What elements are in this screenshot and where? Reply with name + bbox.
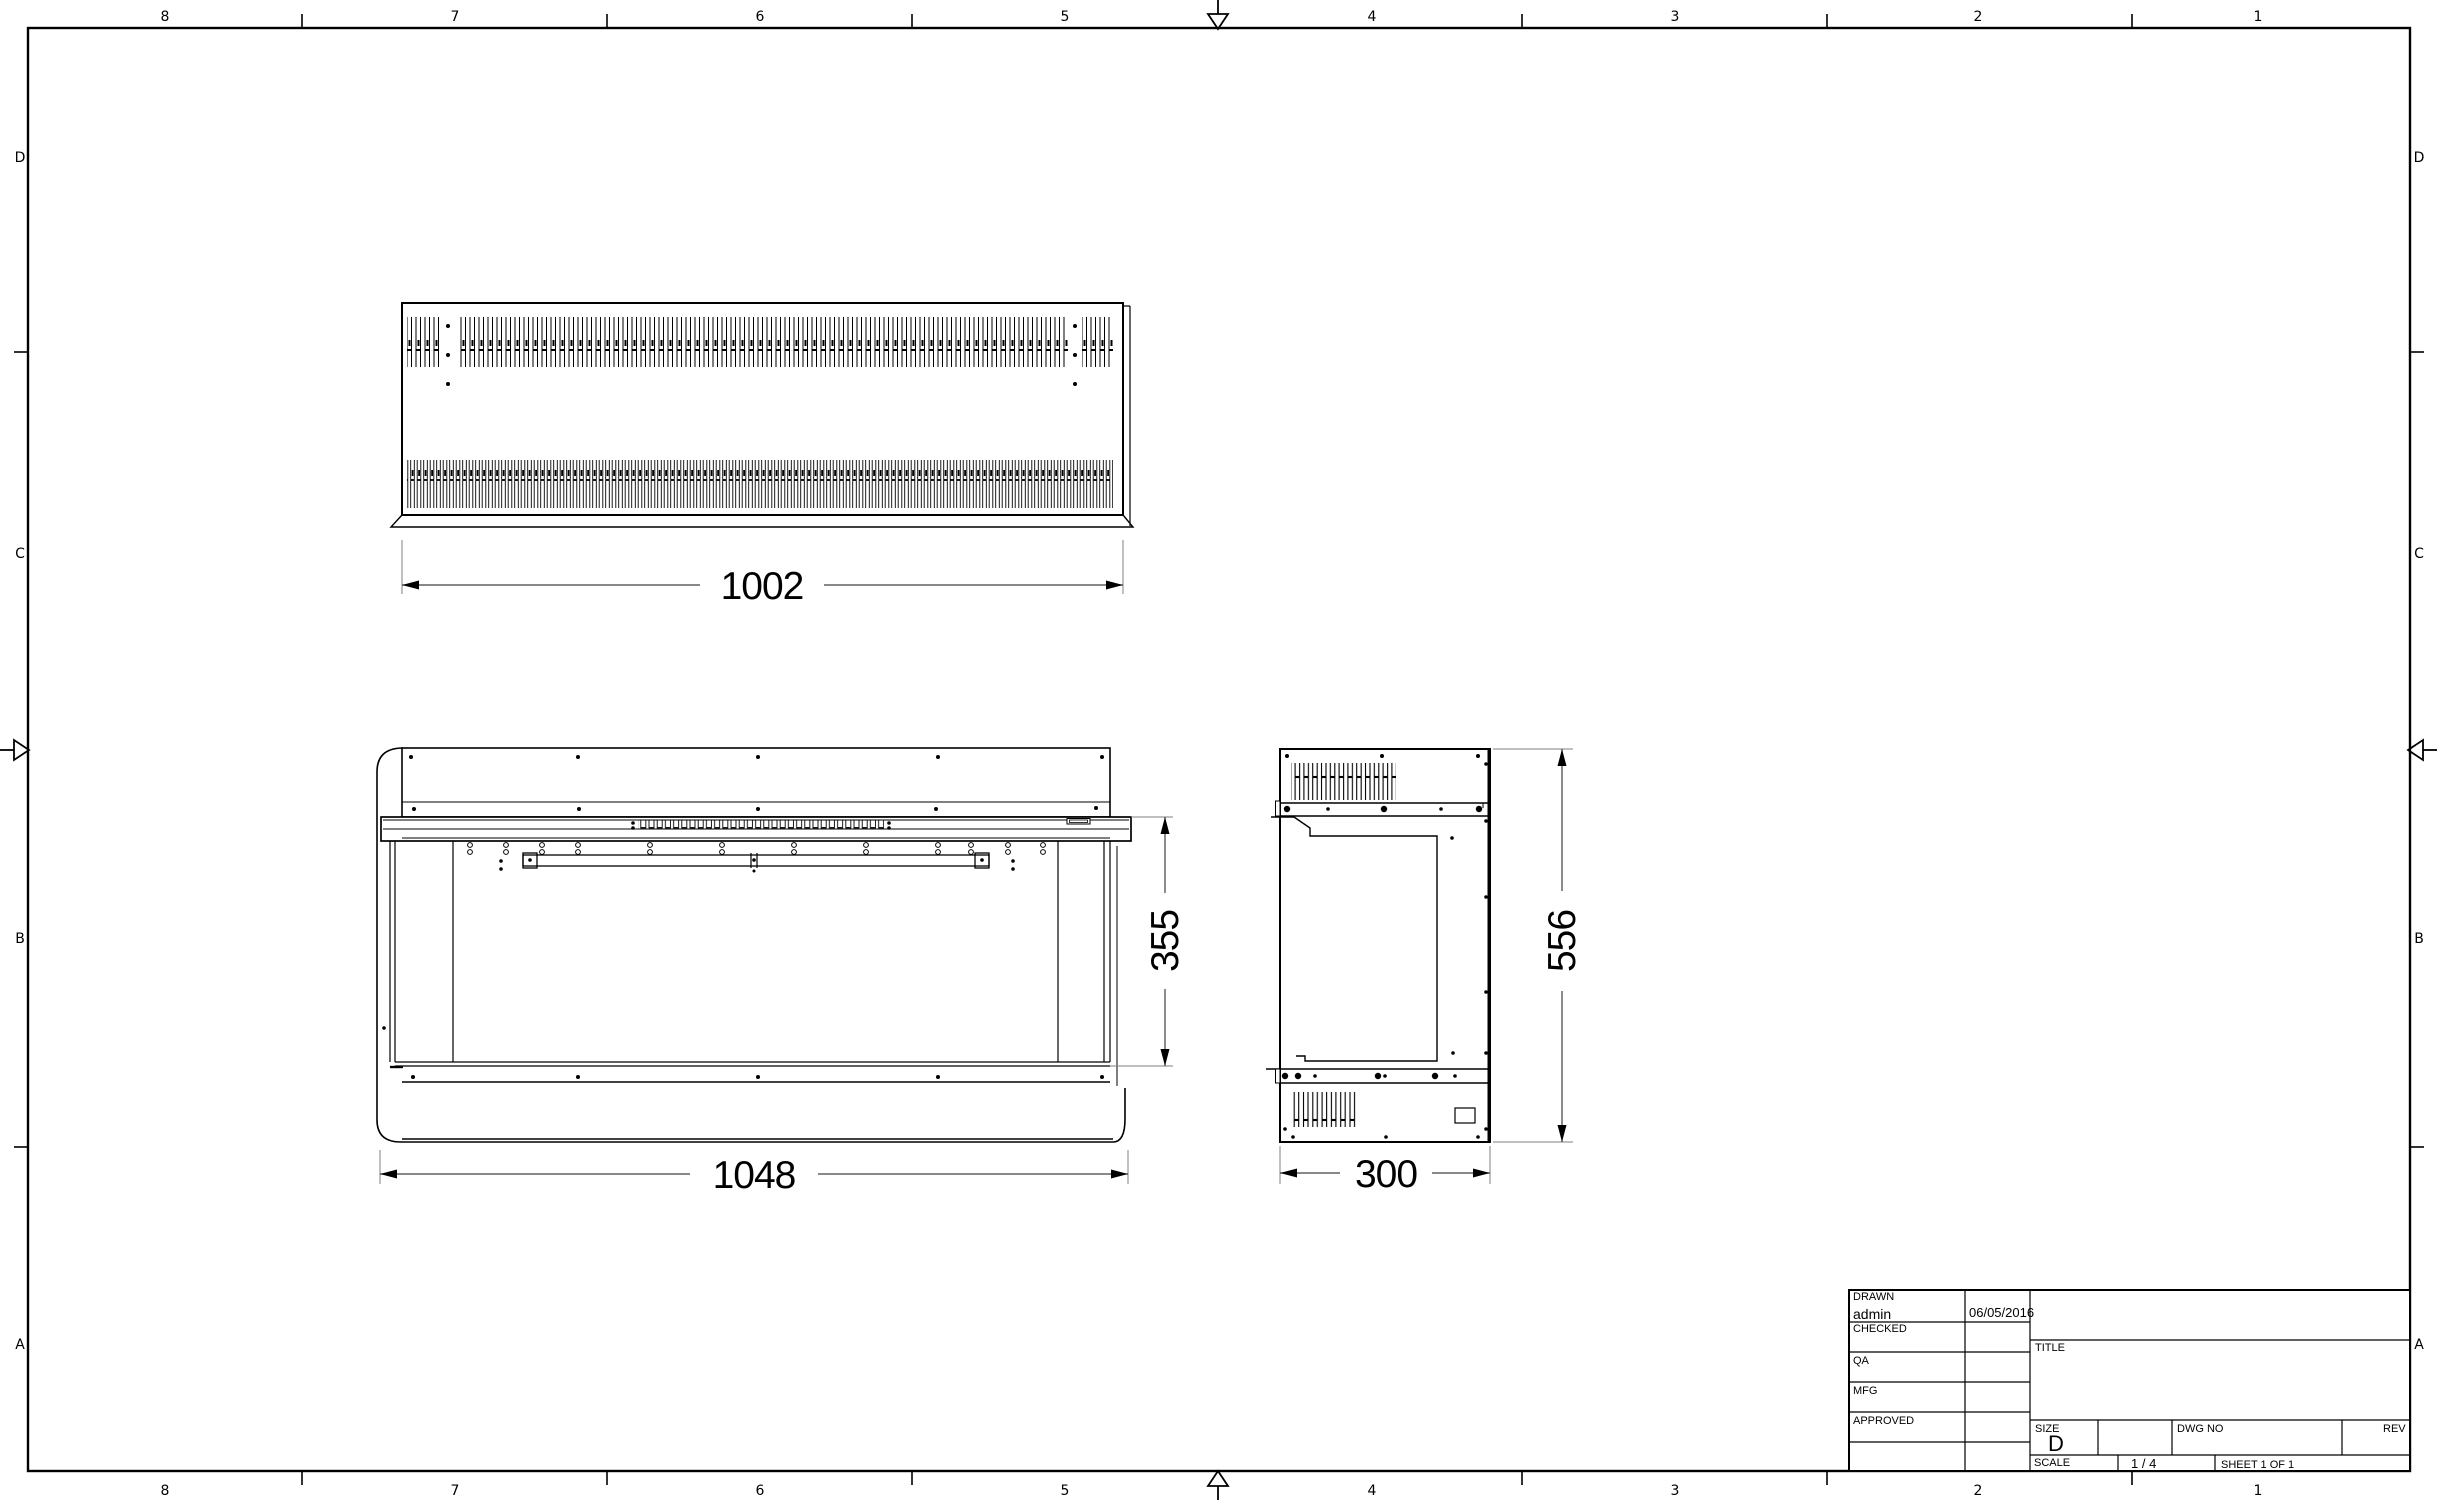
side-top-vents (1291, 763, 1396, 800)
zone-column-label: 5 (1061, 1483, 1070, 1499)
zone-row-label: D (2414, 150, 2425, 166)
zone-column-label: 1 (2254, 9, 2263, 25)
title-block: DRAWN admin 06/05/2016 CHECKED QA MFG AP… (1849, 1290, 2410, 1471)
zone-column-label: 8 (161, 1483, 170, 1499)
dim-front-width-text: 1048 (713, 1154, 796, 1197)
heater-outlet-grille (638, 821, 884, 830)
control-window (1067, 819, 1090, 825)
zone-column-label: 3 (1671, 1483, 1680, 1499)
dimension-front-height: 355 (1110, 817, 1187, 1066)
zone-column-label: 5 (1061, 9, 1070, 25)
zone-column-label: 3 (1671, 9, 1680, 25)
zone-column-label: 7 (451, 9, 460, 25)
scale-value: 1 / 4 (2131, 1456, 2156, 1471)
zone-column-label: 1 (2254, 1483, 2263, 1499)
side-view: 300 556 (1266, 749, 1584, 1197)
zone-row-label: C (2414, 546, 2424, 562)
drawn-value: admin (1853, 1306, 1891, 1322)
center-mark-icon (0, 0, 2437, 1500)
dimension-side-width: 300 (1280, 1146, 1490, 1197)
side-bottom-vents (1291, 1092, 1356, 1127)
sheet-text: SHEET 1 OF 1 (2221, 1459, 2294, 1471)
zone-column-label: 7 (451, 1483, 460, 1499)
sheet-border: 8 7 6 5 4 3 2 1 8 7 6 5 4 3 2 1 D C B A … (0, 0, 2437, 1500)
zone-row-label: B (2414, 931, 2424, 947)
drawing-sheet: 8 7 6 5 4 3 2 1 8 7 6 5 4 3 2 1 D C B A … (0, 0, 2437, 1500)
zone-row-label: A (15, 1337, 25, 1353)
drawn-date: 06/05/2016 (1969, 1305, 2034, 1320)
approved-label: APPROVED (1853, 1415, 1914, 1427)
zone-row-label: C (15, 546, 25, 562)
dimension-front-width: 1048 (380, 1149, 1128, 1199)
firebox-interior (390, 841, 1110, 1067)
zone-column-label: 6 (756, 1483, 765, 1499)
title-label: TITLE (2035, 1342, 2065, 1354)
front-view: 1048 355 (377, 748, 1187, 1199)
zone-row-label: B (15, 931, 25, 947)
dim-side-height-text: 556 (1541, 910, 1584, 972)
mfg-label: MFG (1853, 1385, 1877, 1397)
zone-column-label: 4 (1368, 1483, 1377, 1499)
drawn-label: DRAWN (1853, 1291, 1894, 1303)
zone-row-label: D (15, 150, 26, 166)
zone-column-label: 4 (1368, 9, 1377, 25)
zone-row-label: A (2414, 1337, 2424, 1353)
glass-frame-band (381, 817, 1131, 841)
scale-label: SCALE (2034, 1457, 2070, 1469)
checked-label: CHECKED (1853, 1323, 1907, 1335)
mounting-holes (468, 843, 1046, 855)
dim-top-width-text: 1002 (721, 565, 804, 608)
size-value: D (2048, 1431, 2064, 1456)
junction-box (1455, 1108, 1475, 1123)
rev-label: REV (2383, 1423, 2406, 1435)
top-view: 1002 (391, 303, 1133, 610)
dwg-no-label: DWG NO (2177, 1423, 2224, 1435)
zone-column-label: 8 (161, 9, 170, 25)
qa-label: QA (1853, 1355, 1870, 1367)
dim-side-width-text: 300 (1355, 1153, 1417, 1196)
dim-front-height-text: 355 (1144, 910, 1187, 972)
mounting-bracket (523, 853, 989, 873)
front-skirt (402, 1075, 1113, 1139)
zone-column-label: 2 (1974, 1483, 1983, 1499)
zone-column-label: 2 (1974, 9, 1983, 25)
zone-column-label: 6 (756, 9, 765, 25)
dimension-side-height: 556 (1493, 749, 1584, 1142)
dimension-top-width: 1002 (402, 540, 1123, 610)
